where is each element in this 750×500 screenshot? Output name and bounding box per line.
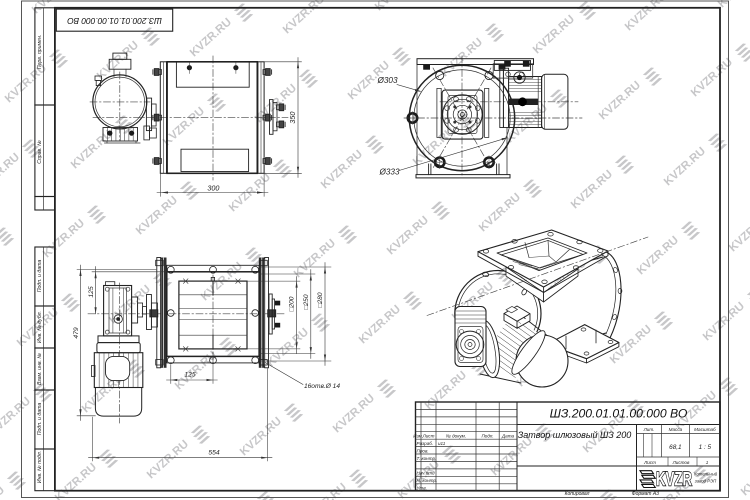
svg-text:□280: □280 [317, 292, 324, 307]
svg-text:Масса: Масса [669, 427, 683, 432]
svg-text:1 : 5: 1 : 5 [699, 444, 712, 451]
svg-text:Пров.: Пров. [417, 448, 429, 453]
svg-text:и11: и11 [438, 441, 446, 446]
svg-text:16отв.Ø 14: 16отв.Ø 14 [304, 383, 340, 390]
svg-text:554: 554 [208, 450, 220, 457]
svg-text:Инв. № дубл.: Инв. № дубл. [37, 311, 43, 343]
svg-text:300: 300 [207, 183, 219, 192]
svg-text:Формат А3: Формат А3 [632, 491, 660, 497]
svg-text:Нач.отд: Нач.отд [417, 471, 436, 476]
svg-text:Затвор шлюзовый ШЗ 200: Затвор шлюзовый ШЗ 200 [518, 430, 632, 440]
svg-text:ШЗ.200.01.01.00.000 ВО: ШЗ.200.01.01.00.000 ВО [67, 16, 162, 26]
svg-text:Лит.: Лит. [643, 427, 655, 432]
svg-text:Разраб.: Разраб. [417, 441, 434, 446]
svg-text:Котельный: Котельный [694, 472, 718, 477]
svg-text:Справ. №: Справ. № [37, 140, 43, 164]
svg-text:479: 479 [73, 327, 80, 339]
svg-text:№ докум.: № докум. [446, 434, 466, 439]
svg-text:Перв. примен.: Перв. примен. [37, 35, 43, 69]
svg-text:ШЗ.200.01.01.00.000 ВО: ШЗ.200.01.01.00.000 ВО [550, 406, 688, 420]
svg-text:1: 1 [706, 460, 709, 465]
svg-text:Лист: Лист [643, 460, 656, 465]
svg-text:Листов: Листов [672, 460, 690, 465]
svg-text:Ø303: Ø303 [376, 76, 397, 85]
svg-text:125: 125 [184, 372, 196, 379]
svg-text:68,1: 68,1 [669, 444, 682, 451]
svg-text:Утв.: Утв. [417, 486, 427, 491]
svg-text:Инв. № подл.: Инв. № подл. [37, 451, 43, 483]
svg-text:Т. контр.: Т. контр. [417, 456, 437, 461]
svg-text:завод РЭП: завод РЭП [694, 479, 717, 484]
svg-text:Н. контр.: Н. контр. [417, 478, 438, 483]
svg-text:Копировал: Копировал [565, 491, 590, 497]
svg-text:Взам. инв. №: Взам. инв. № [37, 353, 43, 385]
svg-text:Лист: Лист [422, 434, 435, 439]
svg-text:350: 350 [288, 112, 297, 124]
svg-text:Подп.: Подп. [481, 434, 493, 439]
svg-text:Подп. и дата: Подп. и дата [37, 260, 43, 293]
svg-text:125: 125 [88, 286, 95, 298]
svg-text:Дата: Дата [501, 434, 515, 439]
svg-text:KVZR: KVZR [656, 469, 692, 491]
svg-text:Подп. и дата: Подп. и дата [37, 403, 43, 436]
svg-text:Масштаб: Масштаб [694, 427, 716, 432]
svg-text:□250: □250 [303, 294, 310, 309]
svg-text:□200: □200 [289, 296, 296, 311]
svg-text:Ø333: Ø333 [378, 167, 399, 176]
